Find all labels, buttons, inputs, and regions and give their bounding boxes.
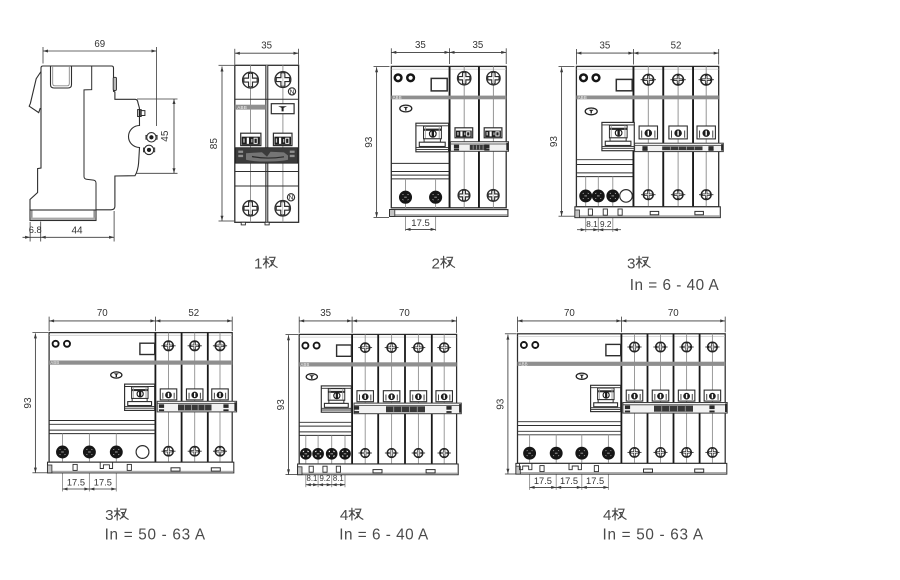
svg-text:ABB: ABB [50,360,59,365]
svg-text:ABB: ABB [519,361,528,366]
svg-text:In = 6 - 40 A: In = 6 - 40 A [339,527,429,544]
svg-text:ABB: ABB [578,95,587,100]
svg-text:35: 35 [320,308,331,319]
svg-text:In = 50 - 63 A: In = 50 - 63 A [603,527,704,544]
svg-text:52: 52 [188,308,199,319]
svg-text:4: 4 [340,507,348,524]
svg-text:35: 35 [472,40,483,51]
svg-text:8.1: 8.1 [586,220,598,229]
svg-text:93: 93 [364,136,375,148]
svg-text:ABB: ABB [237,105,247,110]
svg-text:93: 93 [276,399,287,411]
svg-text:ABB: ABB [393,95,402,100]
svg-text:52: 52 [671,41,682,52]
svg-text:8.1: 8.1 [333,474,344,483]
svg-text:35: 35 [415,40,426,51]
svg-text:44: 44 [71,225,83,236]
svg-text:93: 93 [23,397,34,409]
svg-text:70: 70 [97,308,108,319]
svg-text:85: 85 [209,138,220,150]
svg-text:70: 70 [399,308,410,319]
svg-text:ABB: ABB [301,362,310,367]
svg-text:69: 69 [94,39,105,50]
svg-text:17.5: 17.5 [534,476,552,486]
svg-text:17.5: 17.5 [560,476,578,486]
svg-text:9.2: 9.2 [319,474,330,483]
svg-text:N: N [289,195,294,202]
svg-text:2: 2 [432,255,440,272]
svg-text:1: 1 [254,255,262,272]
svg-text:35: 35 [600,41,611,52]
svg-text:93: 93 [495,398,506,410]
svg-text:17.5: 17.5 [67,478,85,488]
svg-text:3: 3 [627,255,635,272]
svg-text:45: 45 [160,130,171,142]
svg-text:4: 4 [603,507,611,524]
svg-text:N: N [290,89,295,96]
svg-text:17.5: 17.5 [586,476,604,486]
svg-text:6.8: 6.8 [29,225,42,235]
svg-text:17.5: 17.5 [94,478,112,488]
svg-text:9.2: 9.2 [600,220,612,229]
svg-text:70: 70 [564,308,575,319]
svg-text:70: 70 [668,308,679,319]
svg-text:3: 3 [105,507,113,524]
svg-text:In = 50 - 63 A: In = 50 - 63 A [105,527,206,544]
svg-text:17.5: 17.5 [411,218,430,229]
svg-text:8.1: 8.1 [307,474,318,483]
svg-text:93: 93 [549,136,560,148]
svg-text:In = 6 - 40 A: In = 6 - 40 A [630,277,720,294]
svg-text:35: 35 [261,41,272,52]
